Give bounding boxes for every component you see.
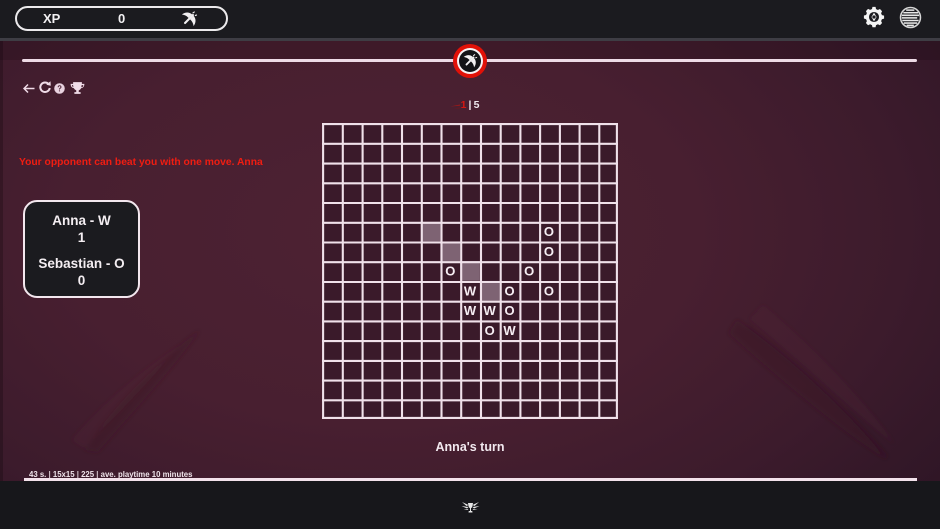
svg-text:O: O <box>544 283 554 298</box>
svg-text:O: O <box>504 283 514 298</box>
svg-text:W: W <box>464 283 477 298</box>
svg-text:O: O <box>524 264 534 279</box>
svg-text:W: W <box>484 303 497 318</box>
svg-text:O: O <box>544 244 554 259</box>
svg-text:O: O <box>485 323 495 338</box>
svg-text:O: O <box>544 224 554 239</box>
svg-text:W: W <box>503 323 516 338</box>
svg-text:W: W <box>464 303 477 318</box>
svg-text:O: O <box>445 264 455 279</box>
svg-text:O: O <box>504 303 514 318</box>
